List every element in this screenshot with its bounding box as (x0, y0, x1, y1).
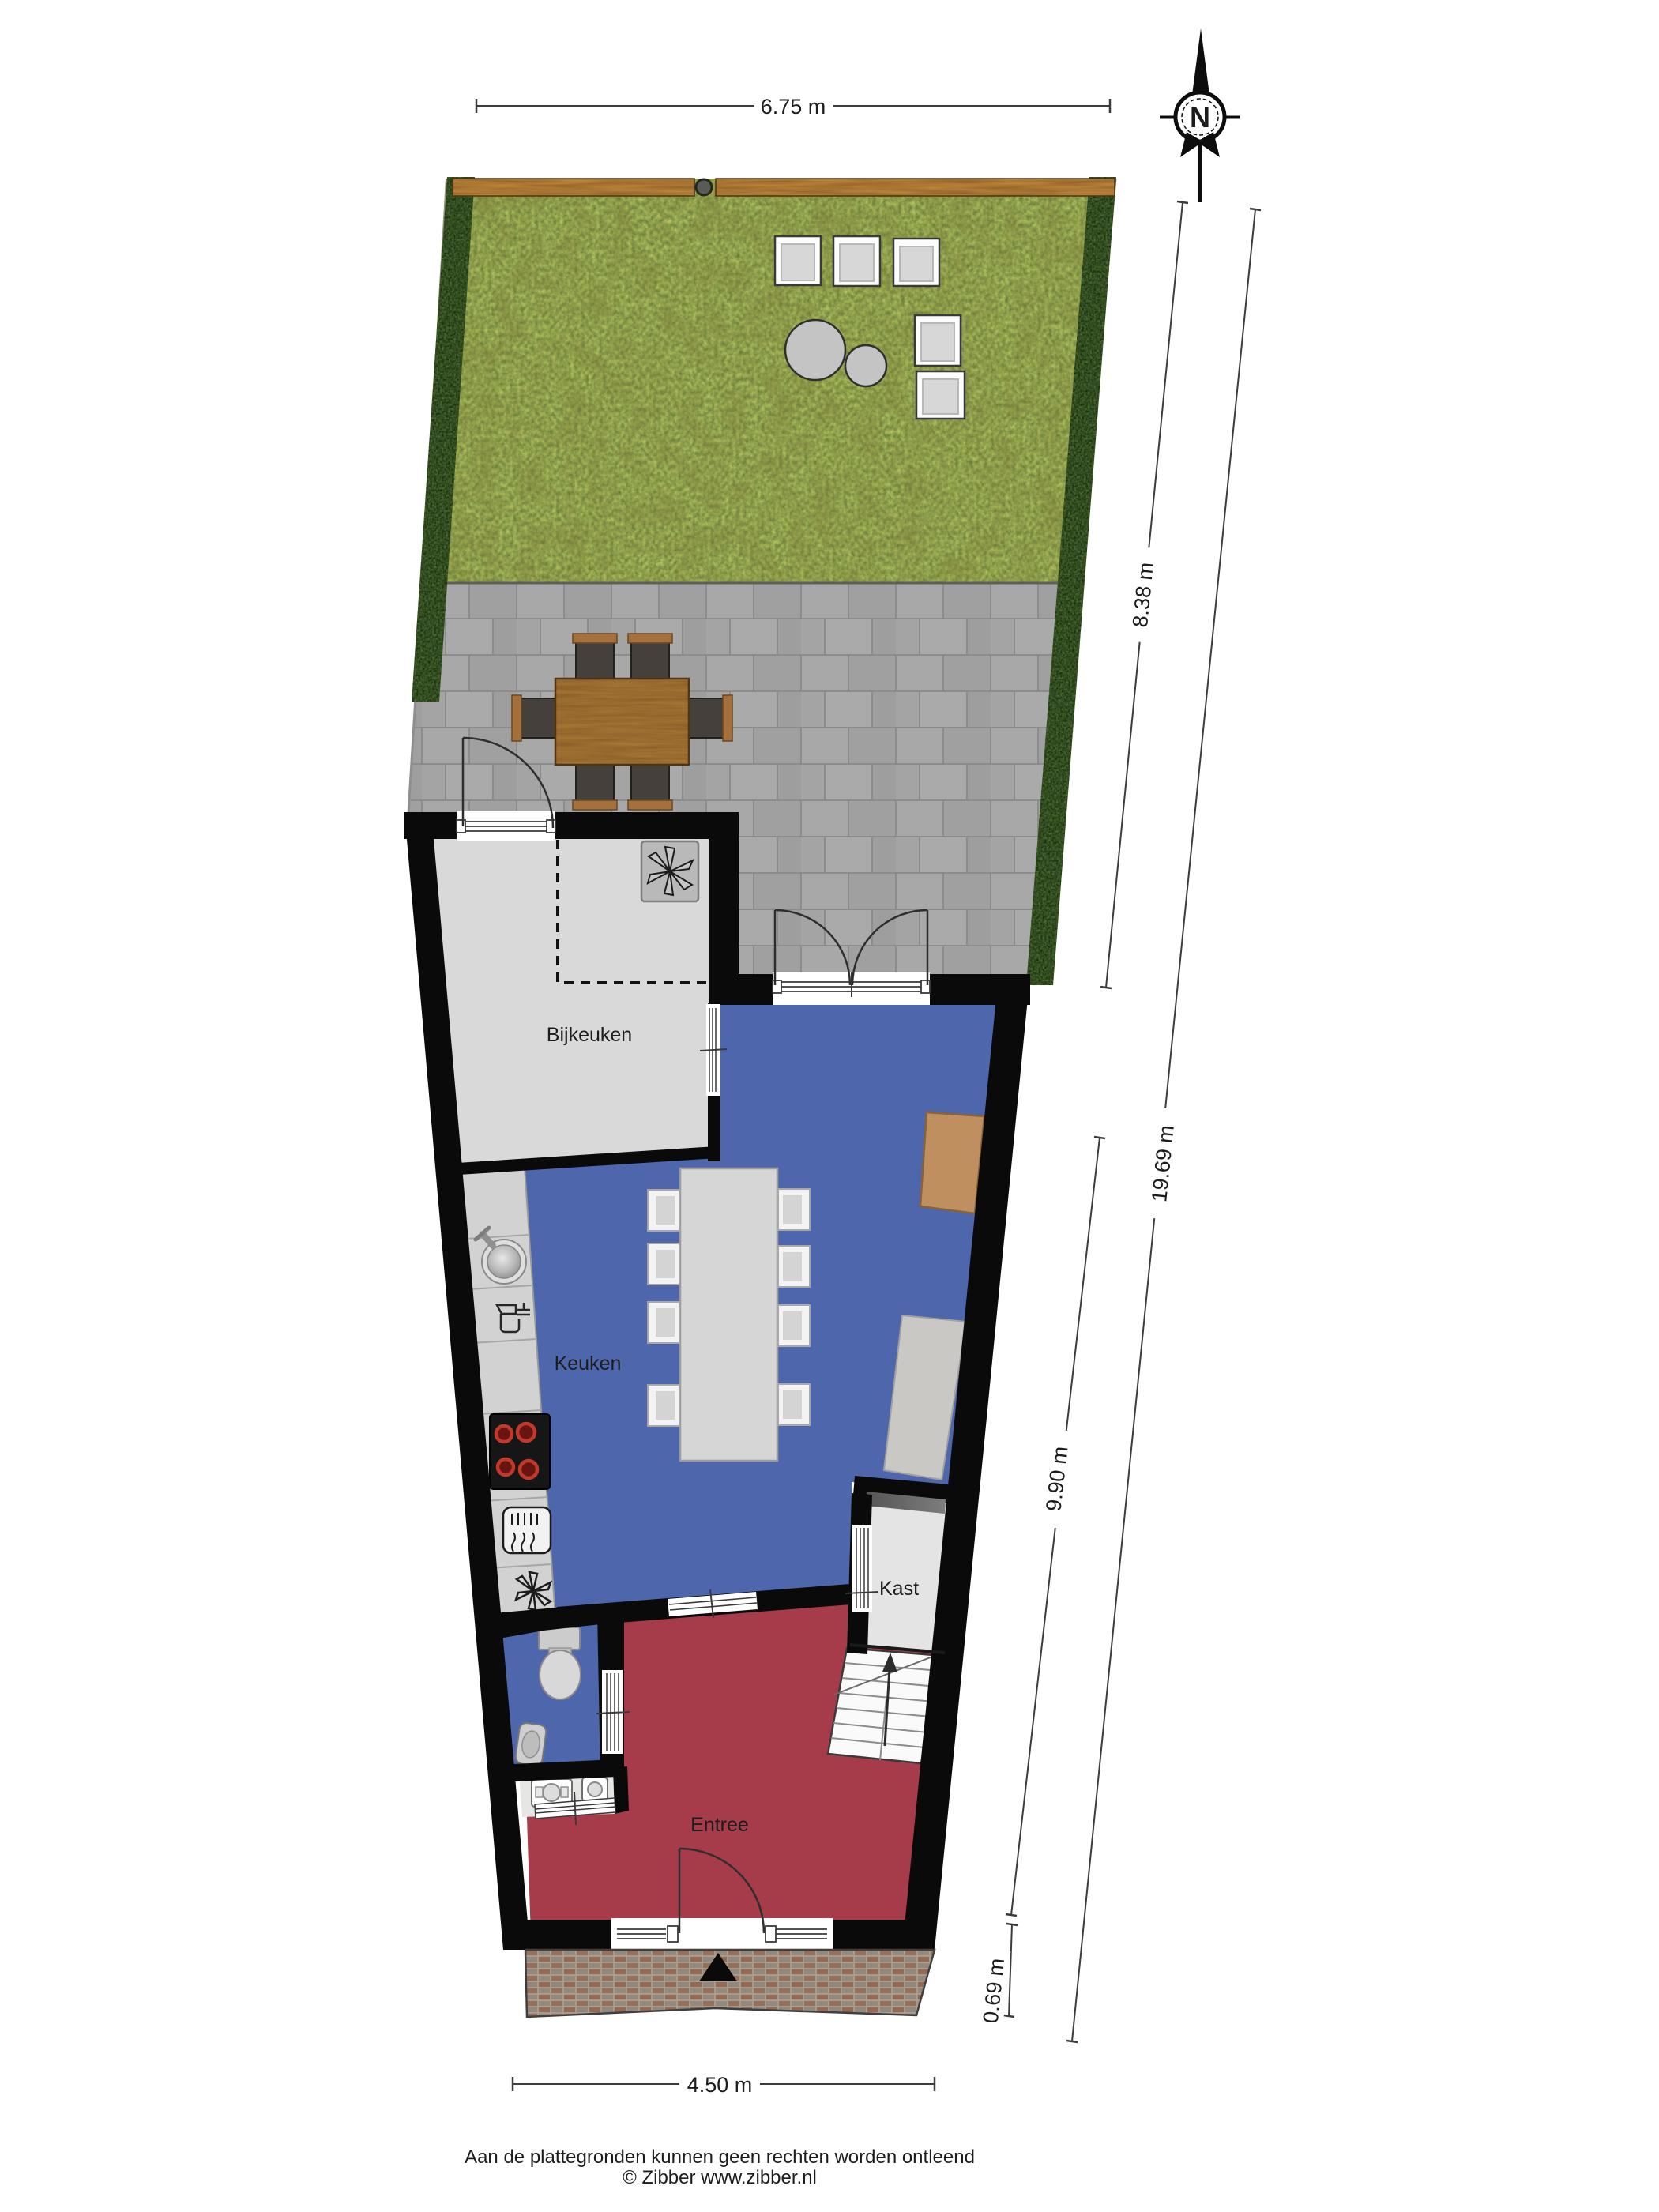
svg-text:Entree: Entree (690, 1814, 749, 1836)
svg-text:© Zibber www.zibber.nl: © Zibber www.zibber.nl (623, 2167, 817, 2188)
svg-text:Kast: Kast (879, 1578, 919, 1600)
svg-text:Aan de plattegronden kunnen ge: Aan de plattegronden kunnen geen rechten… (465, 2146, 975, 2168)
svg-text:N: N (1190, 101, 1210, 134)
svg-text:Keuken: Keuken (555, 1352, 622, 1375)
svg-text:Bijkeuken: Bijkeuken (547, 1024, 632, 1046)
svg-text:6.75 m: 6.75 m (761, 95, 826, 118)
svg-text:4.50 m: 4.50 m (687, 2073, 753, 2097)
